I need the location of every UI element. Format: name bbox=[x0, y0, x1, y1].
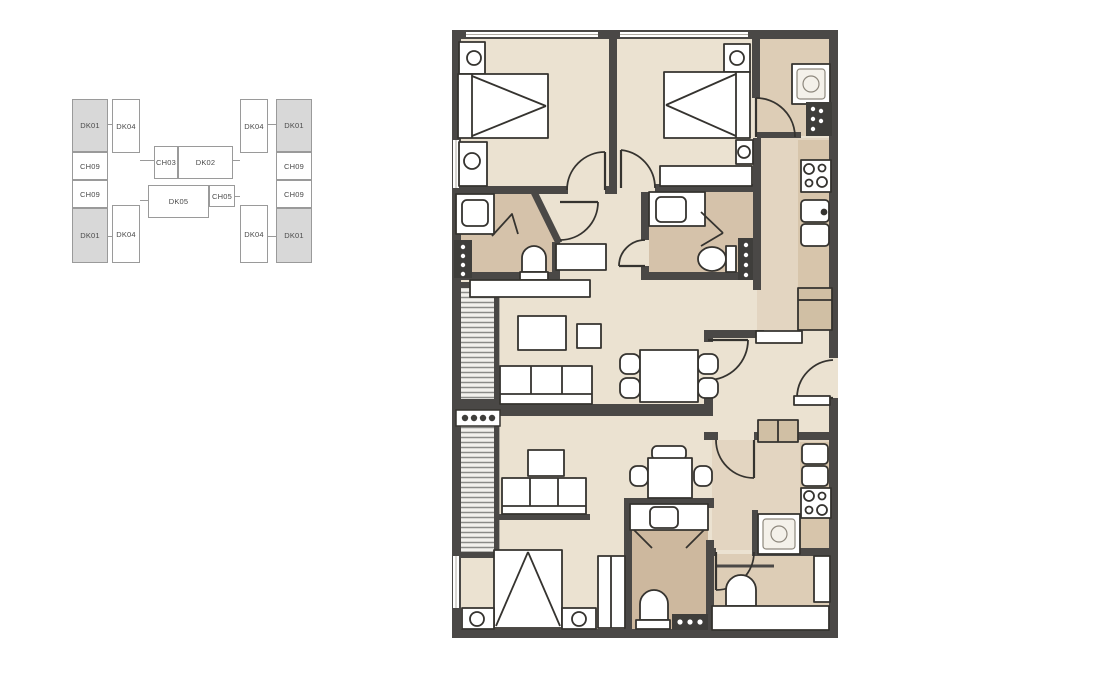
toilet-tank bbox=[726, 246, 736, 272]
toilet-icon bbox=[640, 590, 668, 620]
toilet-base bbox=[636, 620, 670, 629]
sideboard bbox=[470, 280, 590, 297]
vanity-counter bbox=[712, 606, 829, 630]
sofa-icon bbox=[502, 478, 586, 514]
toilet-icon bbox=[726, 575, 756, 606]
toilet-base bbox=[520, 272, 548, 280]
shelf-cabinet bbox=[454, 240, 472, 278]
sink-icon bbox=[462, 200, 488, 226]
floor-plan-drawing bbox=[0, 0, 1100, 688]
louver-grille bbox=[457, 424, 499, 552]
hall-cabinet bbox=[556, 244, 606, 270]
shower-tray bbox=[814, 556, 830, 602]
coffee-table bbox=[518, 316, 566, 350]
toilet-icon bbox=[698, 247, 726, 271]
louver-grille bbox=[457, 284, 499, 402]
washer-icon bbox=[758, 514, 800, 554]
stove-icon bbox=[801, 488, 831, 518]
sofa-icon bbox=[500, 366, 592, 404]
floor-plan-page: DK01 DK04 CH09 CH09 DK01 DK04 CH03 DK02 … bbox=[0, 0, 1100, 688]
shelf-cabinet bbox=[738, 238, 753, 280]
shelf-cabinet bbox=[672, 614, 708, 630]
shoe-cabinet bbox=[756, 331, 802, 343]
sink-icon bbox=[656, 197, 686, 222]
dresser bbox=[660, 166, 752, 186]
toilet-icon bbox=[522, 246, 546, 272]
side-table bbox=[577, 324, 601, 348]
entry-wardrobe bbox=[798, 288, 832, 330]
shelf-cabinet bbox=[806, 102, 832, 136]
vent-grille bbox=[456, 410, 500, 426]
stove-icon bbox=[801, 160, 831, 192]
hall-bench bbox=[794, 396, 830, 405]
tv-icon bbox=[528, 450, 564, 476]
sink-icon bbox=[650, 507, 678, 528]
washer-icon bbox=[792, 64, 830, 104]
